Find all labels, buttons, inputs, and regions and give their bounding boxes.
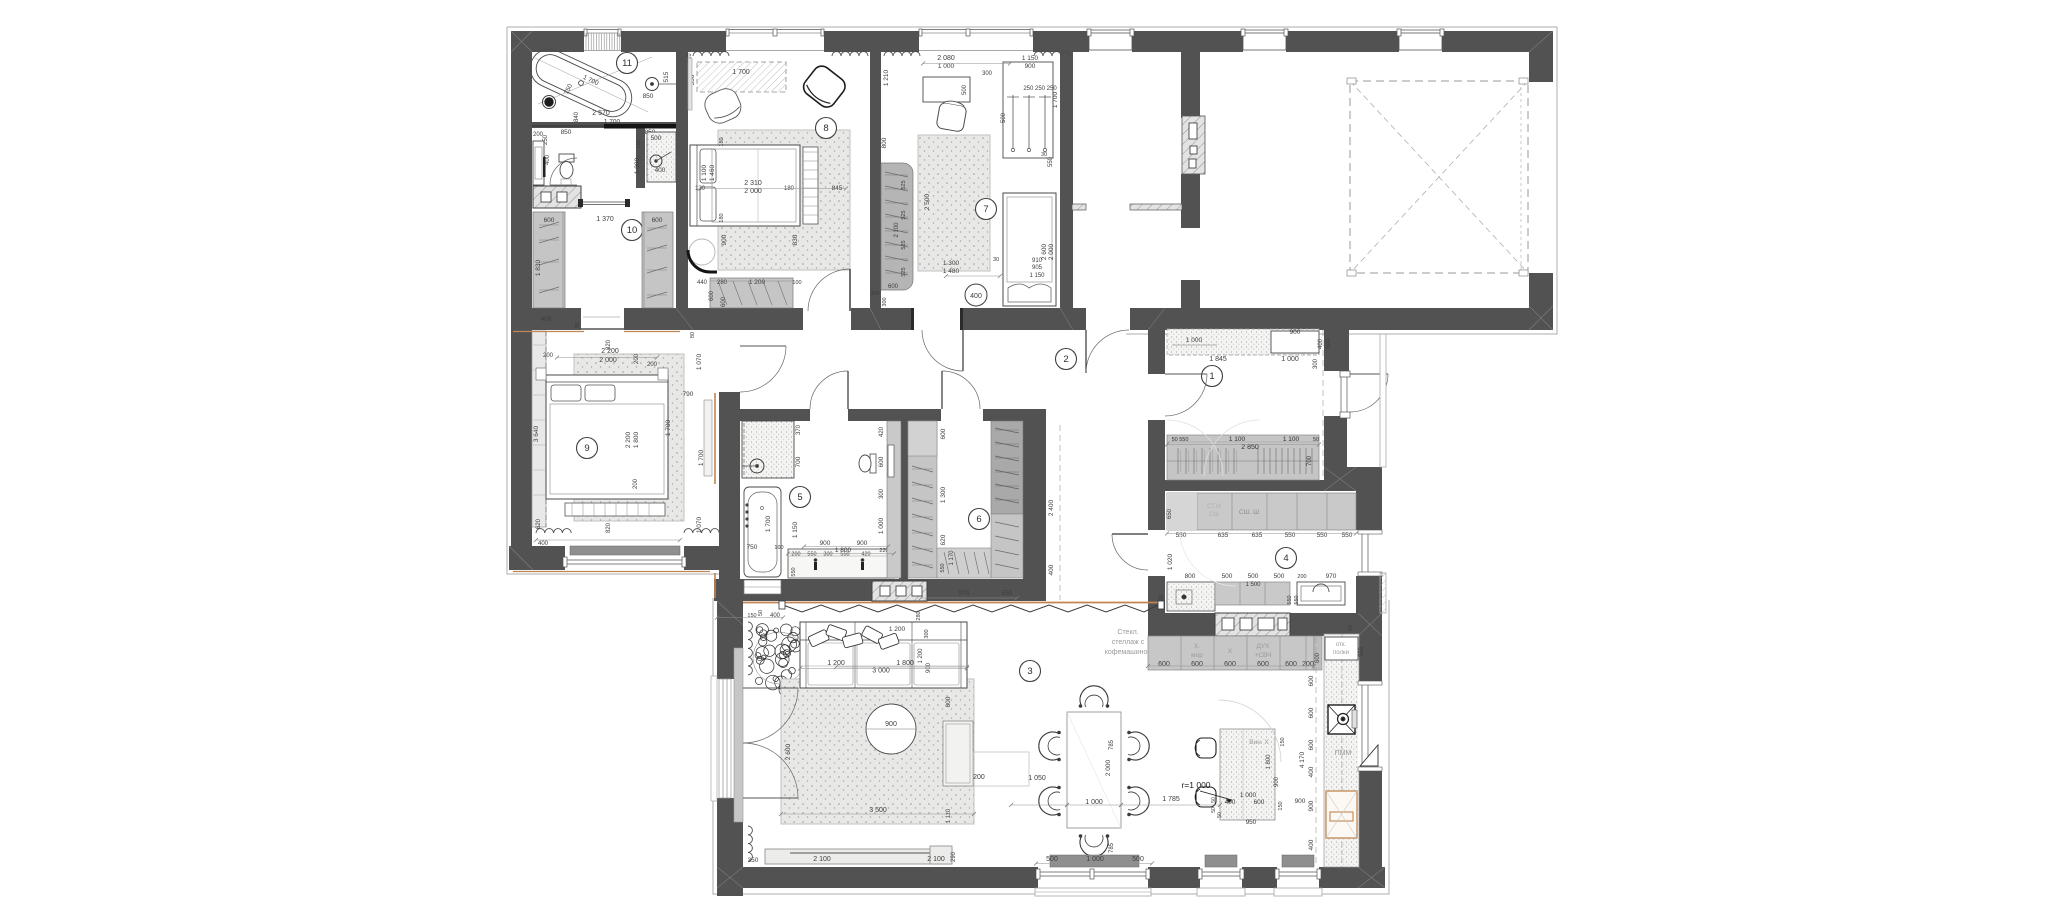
svg-text:150: 150 [1280, 737, 1286, 746]
svg-text:полки: полки [1333, 650, 1349, 656]
svg-text:50: 50 [758, 610, 764, 616]
svg-text:790: 790 [683, 391, 694, 398]
svg-text:1 000: 1 000 [938, 63, 955, 70]
svg-text:100: 100 [792, 280, 801, 286]
svg-text:400: 400 [655, 167, 666, 174]
svg-text:80: 80 [575, 322, 581, 328]
svg-text:800: 800 [1185, 573, 1196, 580]
svg-text:1 100: 1 100 [1229, 436, 1246, 443]
svg-text:1 000: 1 000 [878, 517, 885, 534]
svg-text:600: 600 [1224, 661, 1236, 668]
svg-text:1 170: 1 170 [949, 550, 955, 566]
svg-text:2 000: 2 000 [1048, 243, 1055, 260]
svg-text:200: 200 [647, 362, 658, 368]
svg-text:ДУХ: ДУХ [1257, 643, 1271, 650]
svg-text:150: 150 [636, 139, 642, 148]
svg-text:400: 400 [1225, 799, 1236, 806]
svg-text:525: 525 [901, 240, 907, 249]
svg-text:350: 350 [1359, 646, 1365, 657]
svg-text:400: 400 [970, 293, 982, 300]
svg-text:400: 400 [541, 316, 552, 323]
svg-text:1 200: 1 200 [749, 279, 766, 286]
svg-text:290: 290 [951, 851, 957, 862]
svg-text:900: 900 [1025, 63, 1036, 70]
svg-text:600: 600 [1308, 739, 1315, 750]
svg-text:400: 400 [545, 154, 551, 165]
svg-text:3: 3 [1027, 666, 1032, 677]
svg-text:600: 600 [709, 290, 715, 301]
svg-text:r=1 000: r=1 000 [1181, 780, 1210, 790]
svg-text:500: 500 [1132, 856, 1144, 863]
svg-text:300: 300 [924, 629, 930, 638]
svg-text:2 000: 2 000 [744, 188, 762, 195]
svg-text:525: 525 [901, 267, 907, 276]
svg-text:6: 6 [976, 514, 981, 525]
svg-text:9: 9 [584, 443, 589, 454]
svg-text:400: 400 [538, 541, 549, 547]
svg-text:600: 600 [945, 696, 952, 707]
svg-text:2: 2 [1063, 354, 1068, 365]
svg-text:500: 500 [651, 135, 662, 142]
svg-text:900: 900 [820, 540, 831, 547]
svg-text:900: 900 [1295, 798, 1306, 805]
svg-text:1 150: 1 150 [1029, 273, 1045, 279]
svg-text:1 500: 1 500 [1245, 582, 1261, 588]
svg-text:1 020: 1 020 [1167, 553, 1174, 570]
svg-text:280: 280 [916, 611, 922, 620]
svg-text:600: 600 [888, 284, 899, 290]
svg-text:500: 500 [1274, 573, 1285, 580]
svg-text:1 110: 1 110 [946, 808, 952, 823]
svg-text:3 640: 3 640 [533, 425, 540, 442]
svg-text:905: 905 [1032, 265, 1043, 271]
svg-text:мор: мор [1191, 652, 1203, 659]
svg-text:1 460: 1 460 [709, 164, 716, 181]
svg-text:2 080: 2 080 [937, 55, 955, 62]
svg-text:800: 800 [881, 137, 888, 148]
svg-text:300: 300 [1313, 358, 1319, 369]
svg-text:150: 150 [1278, 801, 1284, 810]
svg-text:600: 600 [1308, 675, 1315, 686]
svg-text:550: 550 [1048, 156, 1054, 167]
svg-text:180: 180 [719, 137, 725, 146]
svg-text:400: 400 [1048, 564, 1055, 575]
svg-text:180: 180 [719, 213, 725, 222]
svg-text:300: 300 [882, 297, 888, 306]
svg-text:50 550: 50 550 [1172, 437, 1189, 443]
svg-text:2 400: 2 400 [1048, 499, 1055, 516]
svg-text:2 000: 2 000 [599, 357, 617, 364]
svg-text:ПММ: ПММ [1335, 750, 1352, 757]
svg-text:550: 550 [1294, 595, 1300, 604]
svg-text:150: 150 [747, 613, 756, 619]
svg-text:1 000: 1 000 [1086, 856, 1104, 863]
svg-text:400: 400 [1308, 839, 1315, 850]
svg-text:785: 785 [1109, 842, 1115, 853]
svg-text:600: 600 [878, 456, 885, 467]
svg-text:600: 600 [721, 296, 727, 307]
svg-text:50: 50 [1211, 797, 1217, 803]
svg-text:550: 550 [1287, 595, 1293, 604]
svg-text:300: 300 [870, 291, 879, 297]
svg-text:900: 900 [857, 540, 868, 547]
svg-text:1 150: 1 150 [792, 521, 799, 538]
svg-text:180: 180 [784, 186, 795, 192]
svg-text:620: 620 [536, 518, 542, 529]
svg-text:700: 700 [795, 456, 802, 467]
svg-text:80: 80 [690, 332, 696, 338]
svg-text:900: 900 [885, 721, 897, 728]
svg-text:1 830: 1 830 [535, 259, 542, 276]
svg-text:300: 300 [982, 71, 993, 77]
svg-text:620: 620 [940, 534, 947, 545]
svg-text:1 050: 1 050 [1028, 775, 1046, 782]
svg-text:2 600: 2 600 [1041, 243, 1048, 260]
svg-text:600: 600 [652, 217, 663, 224]
svg-text:420: 420 [861, 552, 870, 558]
svg-text:7: 7 [983, 204, 988, 215]
svg-text:130: 130 [695, 186, 706, 192]
svg-text:Стекл.: Стекл. [1117, 629, 1138, 636]
svg-text:1 370: 1 370 [596, 216, 614, 223]
svg-text:300: 300 [823, 552, 832, 558]
svg-text:550: 550 [1002, 590, 1013, 597]
svg-text:850: 850 [561, 129, 572, 136]
svg-text:20: 20 [1348, 625, 1354, 631]
svg-text:2 000: 2 000 [1105, 759, 1112, 776]
svg-text:525: 525 [901, 210, 907, 219]
svg-text:1 700: 1 700 [765, 515, 772, 532]
svg-text:4 170: 4 170 [1299, 751, 1306, 768]
svg-text:СТ.М: СТ.М [1207, 504, 1221, 510]
svg-text:600: 600 [1191, 661, 1203, 668]
svg-text:280: 280 [717, 280, 728, 286]
svg-text:11: 11 [622, 58, 632, 69]
svg-text:1 300: 1 300 [943, 260, 960, 267]
svg-text:550: 550 [940, 563, 946, 572]
svg-text:2 600: 2 600 [785, 743, 792, 760]
svg-text:500: 500 [962, 84, 968, 95]
svg-text:кофемашиной: кофемашиной [1105, 648, 1152, 656]
svg-text:1 100: 1 100 [701, 164, 708, 181]
svg-text:525: 525 [901, 180, 907, 189]
svg-text:515: 515 [663, 71, 670, 82]
svg-text:2 100: 2 100 [894, 222, 900, 238]
svg-text:1 200: 1 200 [827, 660, 845, 667]
svg-text:600: 600 [1308, 707, 1315, 718]
svg-text:600: 600 [1158, 661, 1170, 668]
svg-text:850: 850 [643, 93, 654, 100]
svg-text:500: 500 [1222, 573, 1233, 580]
svg-text:550: 550 [840, 552, 849, 558]
svg-text:50: 50 [1217, 812, 1223, 818]
svg-text:970: 970 [1326, 573, 1337, 580]
svg-text:250 250 250: 250 250 250 [1023, 86, 1057, 92]
svg-text:50: 50 [1313, 437, 1319, 443]
svg-text:1 700: 1 700 [732, 69, 750, 76]
svg-text:1 150: 1 150 [1022, 55, 1039, 62]
svg-text:200: 200 [1302, 661, 1314, 668]
svg-text:30: 30 [993, 257, 999, 263]
svg-text:900: 900 [926, 662, 932, 673]
svg-text:2 500: 2 500 [924, 193, 931, 210]
svg-text:900: 900 [1308, 800, 1315, 811]
svg-text:635: 635 [1218, 532, 1229, 539]
svg-text:500: 500 [1326, 338, 1332, 349]
svg-text:550: 550 [791, 567, 797, 576]
svg-text:1 800: 1 800 [1266, 754, 1272, 770]
svg-text:1 800: 1 800 [633, 431, 640, 448]
svg-text:200: 200 [1297, 574, 1306, 580]
svg-text:830: 830 [792, 234, 799, 245]
svg-text:200: 200 [791, 552, 800, 558]
svg-text:900: 900 [1274, 776, 1280, 787]
svg-text:635: 635 [1252, 532, 1263, 539]
svg-text:750: 750 [747, 544, 758, 551]
svg-text:10: 10 [627, 225, 638, 236]
svg-text:1 845: 1 845 [1209, 356, 1227, 363]
svg-text:650: 650 [1167, 508, 1173, 519]
svg-text:1 000: 1 000 [1186, 337, 1203, 344]
svg-text:700: 700 [1307, 455, 1313, 466]
svg-text:Вин. Х: Вин. Х [1249, 739, 1269, 746]
svg-text:550: 550 [1342, 532, 1353, 539]
svg-text:1 000: 1 000 [634, 157, 641, 174]
svg-text:отк.: отк. [1336, 642, 1347, 648]
svg-text:8: 8 [823, 123, 828, 134]
svg-text:1 480: 1 480 [943, 268, 960, 275]
svg-text:СШ. Ш: СШ. Ш [1239, 509, 1259, 516]
svg-text:1 785: 1 785 [1162, 796, 1180, 803]
svg-text:1 700: 1 700 [665, 419, 672, 436]
svg-text:200: 200 [633, 478, 639, 489]
svg-text:2 200: 2 200 [625, 431, 632, 448]
svg-text:1 200: 1 200 [918, 648, 924, 664]
svg-text:600: 600 [940, 428, 947, 439]
svg-text:стеллаж с: стеллаж с [1112, 639, 1145, 646]
svg-text:840: 840 [574, 111, 580, 122]
svg-text:550: 550 [1285, 532, 1296, 539]
svg-text:910: 910 [1032, 258, 1043, 264]
svg-text:550: 550 [807, 552, 816, 558]
svg-text:1 800: 1 800 [896, 660, 914, 667]
svg-text:370: 370 [796, 424, 802, 435]
svg-text:2 570: 2 570 [592, 110, 610, 117]
svg-text:Х.: Х. [1194, 643, 1200, 650]
svg-text:500: 500 [1001, 112, 1007, 123]
svg-text:2 100: 2 100 [813, 856, 831, 863]
svg-text:440: 440 [697, 280, 708, 286]
svg-text:900: 900 [721, 234, 728, 245]
svg-text:600: 600 [544, 217, 555, 224]
svg-text:100: 100 [774, 545, 783, 551]
svg-text:400: 400 [770, 613, 781, 619]
svg-text:970: 970 [959, 590, 970, 597]
svg-text:2 310: 2 310 [744, 180, 762, 187]
svg-text:2 100: 2 100 [927, 856, 945, 863]
svg-text:1 000: 1 000 [1240, 792, 1257, 799]
svg-text:5: 5 [797, 492, 802, 503]
svg-text:1 200: 1 200 [889, 626, 906, 633]
svg-text:СШ: СШ [1209, 512, 1219, 518]
svg-text:420: 420 [879, 426, 885, 437]
svg-text:820: 820 [606, 522, 612, 533]
svg-text:50: 50 [1211, 807, 1217, 813]
svg-text:300: 300 [879, 488, 885, 499]
svg-text:+СВЧ: +СВЧ [1255, 652, 1272, 659]
svg-text:Х: Х [1228, 648, 1233, 655]
svg-text:500: 500 [1046, 856, 1058, 863]
svg-text:2 850: 2 850 [1241, 444, 1259, 451]
svg-text:550: 550 [1317, 532, 1328, 539]
svg-text:1 100: 1 100 [1283, 436, 1300, 443]
svg-text:600: 600 [1285, 661, 1297, 668]
svg-text:30: 30 [1041, 152, 1047, 158]
svg-text:400: 400 [1308, 766, 1315, 777]
svg-text:1 000: 1 000 [1281, 356, 1299, 363]
svg-text:785: 785 [1109, 739, 1115, 750]
svg-text:550: 550 [1176, 532, 1187, 539]
svg-text:950: 950 [1246, 819, 1257, 826]
svg-text:500: 500 [1248, 573, 1259, 580]
svg-text:1 070: 1 070 [696, 353, 703, 370]
svg-text:3 500: 3 500 [869, 807, 887, 814]
svg-text:1 300: 1 300 [940, 486, 947, 503]
svg-text:4: 4 [1283, 553, 1288, 564]
svg-text:900: 900 [1290, 329, 1301, 336]
svg-text:820: 820 [606, 339, 612, 350]
svg-text:1 210: 1 210 [883, 69, 890, 86]
svg-text:1: 1 [1209, 371, 1214, 382]
svg-text:200: 200 [543, 353, 554, 359]
svg-text:600: 600 [1254, 799, 1265, 806]
svg-text:200: 200 [634, 353, 640, 364]
svg-text:350: 350 [748, 857, 759, 864]
svg-text:600: 600 [1257, 661, 1269, 668]
svg-text:1 700: 1 700 [1052, 91, 1059, 108]
